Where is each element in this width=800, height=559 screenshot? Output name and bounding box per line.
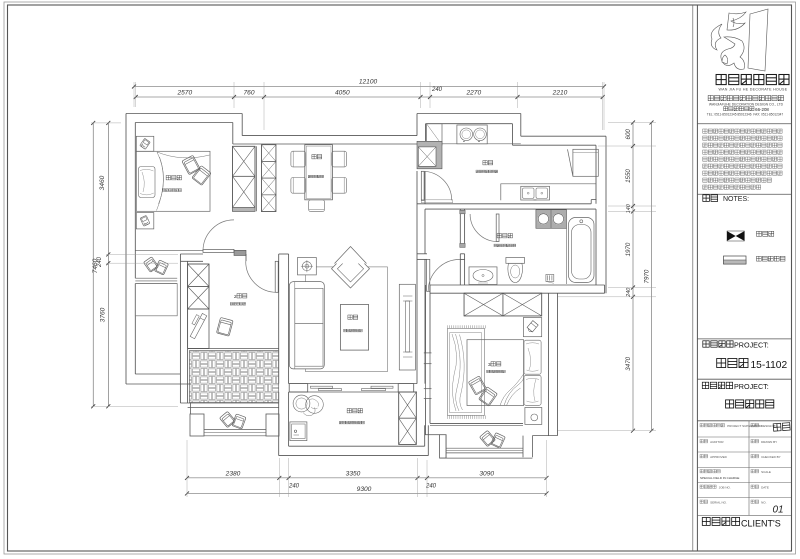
svg-text:CLIENT'S: CLIENT'S <box>741 519 781 529</box>
svg-text:2210: 2210 <box>552 89 568 96</box>
svg-text:240: 240 <box>288 484 300 490</box>
svg-text:TEL: 0511-85012345 85012346 F: TEL: 0511-85012345 85012346 FAX: 0511-85… <box>707 113 784 117</box>
svg-text:PROJECT:: PROJECT: <box>734 341 769 350</box>
svg-text:WANJIAFUHE DECORATION DESIGN C: WANJIAFUHE DECORATION DESIGN CO., LTD <box>709 102 784 106</box>
svg-text:3: 3 <box>488 362 491 368</box>
svg-text:NOTES:: NOTES: <box>723 196 749 203</box>
svg-text:SPECIAL FIELD IN CHARGE: SPECIAL FIELD IN CHARGE <box>700 476 739 480</box>
svg-text:3350: 3350 <box>346 470 361 477</box>
svg-text:3470: 3470 <box>625 356 632 370</box>
svg-text:SERIAL NO.: SERIAL NO. <box>710 500 727 504</box>
svg-text:1550: 1550 <box>625 169 632 183</box>
svg-text:240: 240 <box>425 484 437 490</box>
svg-text:2570: 2570 <box>176 89 192 96</box>
svg-text:1970: 1970 <box>625 242 632 256</box>
svg-text:NO.: NO. <box>761 500 767 504</box>
svg-text:2380: 2380 <box>225 470 241 477</box>
svg-text:WAN JIA FU HE DECORATE HOUSE: WAN JIA FU HE DECORATE HOUSE <box>719 88 788 92</box>
svg-text:7460: 7460 <box>92 258 99 273</box>
svg-text:600: 600 <box>625 129 632 140</box>
svg-text:CHECKED BY: CHECKED BY <box>761 455 781 459</box>
svg-text:9300: 9300 <box>357 486 372 493</box>
svg-text:SCALE: SCALE <box>761 470 771 474</box>
svg-text:66-208: 66-208 <box>755 107 769 112</box>
svg-text:DATE: DATE <box>761 485 769 489</box>
svg-text:3760: 3760 <box>100 307 107 322</box>
svg-text:JOB NO.: JOB NO. <box>719 485 731 489</box>
svg-text:PROJECT:: PROJECT: <box>734 382 769 391</box>
svg-text:3460: 3460 <box>99 175 106 190</box>
svg-text:240: 240 <box>626 288 632 298</box>
svg-text:2: 2 <box>234 294 237 300</box>
svg-text:AUDITOR: AUDITOR <box>710 440 724 444</box>
svg-text:2270: 2270 <box>465 89 481 96</box>
svg-text:APPROVED: APPROVED <box>710 455 728 459</box>
svg-text:760: 760 <box>243 89 254 96</box>
svg-text:7970: 7970 <box>644 269 651 283</box>
svg-text:140: 140 <box>626 204 632 213</box>
svg-text:4050: 4050 <box>335 89 350 96</box>
svg-text:240: 240 <box>431 87 443 93</box>
svg-text:15-1102: 15-1102 <box>751 360 788 371</box>
svg-text:12100: 12100 <box>359 79 378 86</box>
svg-text:DRAWN BY: DRAWN BY <box>761 440 777 444</box>
svg-text:3090: 3090 <box>479 470 494 477</box>
svg-text:01: 01 <box>772 505 783 516</box>
